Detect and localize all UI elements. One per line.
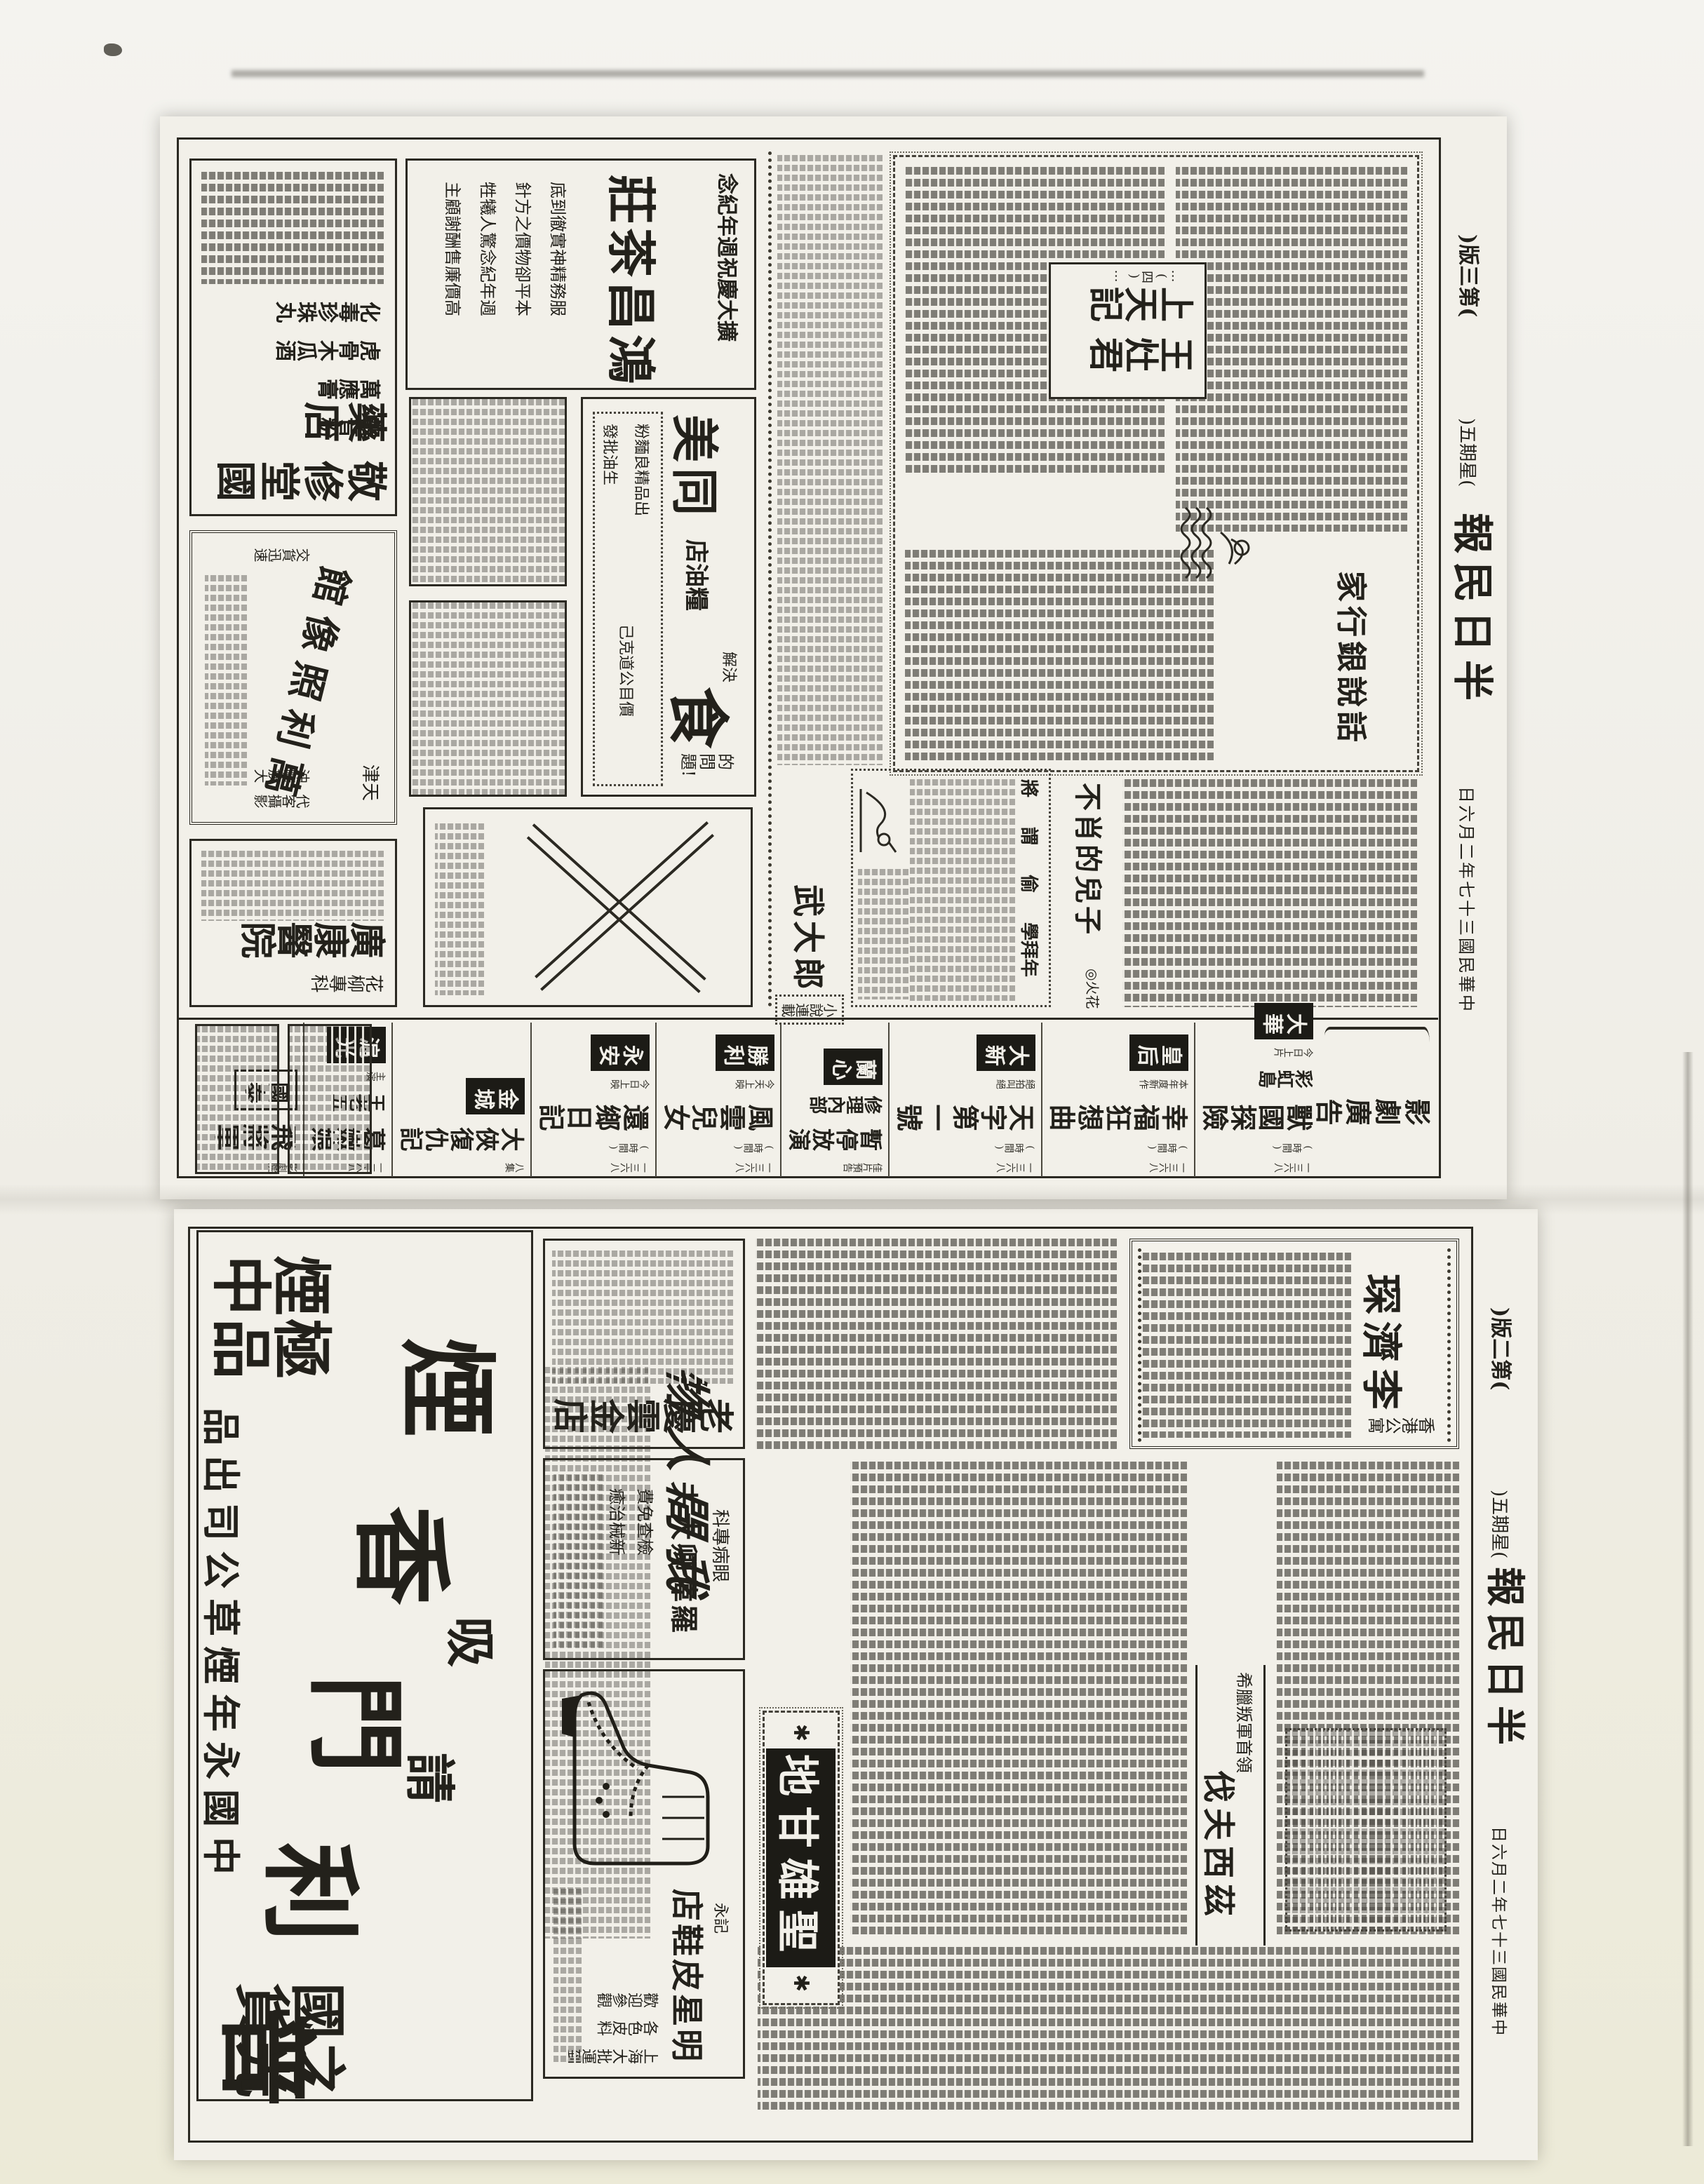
essay-title: 不肖的兒子	[1070, 783, 1111, 937]
crossed-lines-ad	[423, 807, 753, 1007]
page-three: )版三第( )五期星( 報民日半 日六月二年七十三國民華中 家行銀說話	[160, 116, 1507, 1199]
grain-oil-item: 發批油生	[600, 424, 622, 485]
feature-text	[1176, 167, 1407, 532]
eye-clinic-line: 費免查檢	[634, 1488, 659, 1556]
listing-time-label: (時間)	[608, 1140, 650, 1154]
listing-theater: 金城	[466, 1078, 525, 1114]
listing-film: 風雲兒女	[662, 1096, 774, 1135]
catchword: 謂	[1017, 827, 1043, 845]
weekday-label: )五期星(	[1456, 418, 1482, 487]
serial-note: …(四)…	[1112, 267, 1183, 285]
listing-theater: 大新	[977, 1034, 1035, 1071]
greek-name: 伐夫西茲	[1198, 1770, 1244, 1922]
news-inset-box	[1285, 1728, 1447, 1932]
gold-shop-name: 老慶雲金店	[552, 1388, 734, 1438]
supplement-text	[777, 155, 883, 765]
photo-service: 代客攝影	[254, 790, 310, 811]
news-text	[850, 1462, 1187, 1939]
grain-oil-hook-tail: 的問題!	[679, 753, 734, 774]
listing-tag: 八集	[505, 1160, 525, 1174]
grain-oil-type: 店油糧	[681, 539, 716, 611]
listing-time-label: (時間)	[732, 1140, 774, 1154]
cigarette-cmd-a: 請	[397, 1753, 471, 1803]
cinema-listing: 一三六八 (時間) 天字第一號 絕拍叫絕 大新	[888, 1023, 1041, 1177]
cigarette-brand-char: 煙	[383, 1337, 528, 1437]
grain-oil-ad: 美同 店油糧 解決 食 的問題! 粉麵良精品出 發批油生 己克道公目價	[581, 397, 756, 797]
ornament-row	[1138, 1248, 1141, 1442]
cigarette-slogan: 國貨之光	[221, 1977, 347, 2095]
tea-house-slogan: 針方之價物卻平本	[512, 182, 537, 316]
grain-oil-name: 美同	[664, 414, 733, 521]
page-three-region: )版三第( )五期星( 報民日半 日六月二年七十三國民華中 家行銀說話	[160, 116, 1507, 1199]
listing-theater: 蘭心	[824, 1049, 883, 1085]
cinema-header: 影劇廣告	[1313, 1091, 1431, 1129]
listing-film: 天字第一號	[895, 1096, 1035, 1135]
greek-kicker: 希臘叛軍首領	[1233, 1672, 1258, 1773]
catchword: 偷	[1017, 875, 1043, 893]
eye-clinic-name: 夫大卿偉羅	[666, 1481, 706, 1636]
page-two-region: )版二第( )五期星( 報民日半 日六月二年七十三國民華中 香港公寓 琛濟李 希…	[174, 1209, 1538, 2160]
cinema-listing: 一三六八 (時間) 幸福狂想曲 本年度新作 皇后	[1041, 1023, 1194, 1177]
listing-theater: 大華	[1254, 1003, 1313, 1039]
listing-tag: 今日上片	[1274, 1045, 1313, 1059]
listing-phone: 一三六八	[1149, 1160, 1188, 1174]
tea-house-slogan: 底到徹實神精務服	[547, 182, 572, 316]
cinema-listing: 佳片預告 暫停放演 修理內部 蘭心	[780, 1023, 888, 1177]
ornament-row	[1447, 1248, 1451, 1442]
lead-interview-box: 香港公寓 琛濟李	[1129, 1239, 1459, 1449]
listing-film: 大俠復仇記	[398, 1120, 525, 1154]
cigarette-brand-char: 利	[246, 1842, 391, 1942]
eye-clinic-text	[554, 1474, 603, 1648]
eye-clinic-dept: 科專病眼	[709, 1509, 734, 1582]
tea-house-name: 莊茶昌鴻	[599, 175, 670, 388]
listing-film: 獸國探險	[1201, 1096, 1313, 1135]
grain-oil-item: 己克道公目價	[616, 624, 638, 717]
page-label: )版二第(	[1487, 1307, 1518, 1390]
date-line: 日六月二年七十三國民華中	[1489, 1826, 1512, 2037]
date-line: 日六月二年七十三國民華中	[1456, 786, 1480, 1013]
listing-theater: 永安	[591, 1034, 650, 1071]
cigarette-brand-char: 香	[337, 1506, 482, 1605]
eye-clinic-line: 癒治械新	[606, 1488, 631, 1556]
grain-oil-hook-big: 食	[658, 687, 747, 748]
cinema-listing: 八集 大俠復仇記 金城	[391, 1023, 530, 1177]
gandhi-title: 地甘雄聖	[767, 1748, 836, 1967]
catchword: 學拜年	[1017, 922, 1043, 977]
news-text	[758, 1947, 1459, 2114]
pharmacy-product: 觀音粉	[318, 410, 381, 440]
pharmacy-product: 化毒珍珠丸	[276, 294, 381, 325]
listing-phone: 一三六八	[996, 1160, 1035, 1174]
diagonal-line	[540, 834, 714, 991]
photo-text	[205, 575, 247, 786]
scanned-sheet: )版三第( )五期星( 報民日半 日六月二年七十三國民華中 家行銀說話	[0, 0, 1704, 2184]
novel-feature-box: 將 謂 偷 學拜年	[851, 769, 1051, 1007]
small-ad	[409, 397, 567, 586]
tea-house-slogan: 主顧謝酬售廉價高	[442, 182, 467, 316]
star-ornament-icon: ✱	[789, 1974, 814, 1992]
page-two: )版二第( )五期星( 報民日半 日六月二年七十三國民華中 香港公寓 琛濟李 希…	[174, 1209, 1538, 2160]
serial-title-right: 王灶君	[1089, 327, 1195, 377]
tea-house-slogan: 牲犧人驚念紀年週	[477, 182, 502, 316]
photo-city: 津天	[358, 764, 384, 801]
hospital-text	[201, 851, 384, 921]
pharmacy-product: 虎骨木瓜酒	[276, 332, 381, 363]
photo-service: 沖曬放大	[254, 765, 310, 786]
grain-oil-item: 粉麵良精品出	[631, 424, 654, 516]
listing-tag: 絕拍叫絕	[996, 1077, 1035, 1091]
listing-time-label: (時間)	[1146, 1140, 1188, 1154]
serial-title-box: 王灶君 上天記 …(四)…	[1049, 262, 1207, 399]
photo-studio-ad: 津天 館像照利萬 代客攝影 沖曬放大 交貨迅速	[189, 530, 397, 825]
masthead: 報民日半	[1480, 1567, 1536, 1752]
tea-house-banner: 念紀年週祝慶大擴	[713, 173, 744, 342]
shoe-illustration	[554, 1681, 729, 1878]
photo-service: 交貨迅速	[254, 544, 310, 565]
novel-title: 武大郎	[787, 884, 833, 994]
masthead: 報民日半	[1447, 513, 1505, 709]
ad-text	[435, 823, 484, 995]
pharmacy-product: 萬應膏	[318, 371, 381, 402]
feature-headline: 家行銀說話	[1331, 571, 1376, 746]
greek-headline-block: 希臘叛軍首領 伐夫西茲	[1195, 1665, 1266, 1946]
gold-shop-ad: 老慶雲金店	[543, 1239, 745, 1449]
pharmacy-ad: 敬修堂國藥店 觀音粉 萬應膏 虎骨木瓜酒 化毒珍珠丸	[189, 159, 397, 516]
listing-time-label: (時間)	[993, 1140, 1035, 1154]
cinema-listings: 一三六八 (時間) 獸國探險 彩虹島 今日上片 大華 一三六八 (時間) 幸福狂…	[208, 1023, 1319, 1177]
listing-film2: 彩虹島	[1259, 1065, 1313, 1091]
listing-film: 幸福狂想曲	[1048, 1096, 1188, 1135]
shoe-store-ad: 永記 店鞋皮星明 上海大批運到 各色皮料 歡迎參觀	[543, 1669, 745, 2079]
news-text	[756, 1239, 1117, 1449]
cigarette-grade: 煙中極品	[200, 1248, 333, 1375]
scan-speck	[104, 43, 122, 56]
essay-author: ◎火花	[1083, 969, 1103, 1009]
grain-oil-hook-small: 解決	[719, 652, 742, 682]
listing-film: 還鄉日記	[537, 1096, 650, 1135]
cigarette-cmd-b: 吸	[438, 1617, 511, 1667]
tea-house-ad: 念紀年週祝慶大擴 莊茶昌鴻 底到徹實神精務服 針方之價物卻平本 牲犧人驚念紀年週…	[405, 159, 756, 390]
eye-clinic-ad: 科專病眼 夫大卿偉羅 費免查檢 癒治械新	[543, 1458, 745, 1660]
listing-theater: 皇后	[1129, 1034, 1188, 1071]
classified-ad	[288, 1024, 372, 1174]
star-ornament-icon: ✱	[789, 1724, 814, 1741]
pharmacy-text	[201, 172, 384, 284]
listing-tag: 今日上映	[610, 1077, 650, 1091]
gold-shop-text	[552, 1251, 733, 1384]
waves-illustration	[1179, 504, 1280, 588]
cigarette-maker: 品出司公草煙年永國中	[196, 1408, 252, 1885]
lead-text	[1141, 1253, 1351, 1438]
listing-time-label: (時間)	[1271, 1140, 1313, 1154]
listing-tag: 佳片預告	[843, 1160, 883, 1174]
listing-theater: 勝利	[716, 1034, 774, 1071]
listing-film2: 修理內部	[810, 1091, 883, 1117]
feature-text	[905, 550, 1214, 760]
page-label: )版三第(	[1455, 234, 1486, 317]
cinema-header-rule	[1324, 1027, 1430, 1058]
diagonal-line	[535, 821, 709, 978]
small-ad	[409, 600, 567, 797]
sketch-illustration	[856, 782, 908, 859]
listing-tag: 今天上映	[735, 1077, 774, 1091]
page-edge-smudge	[232, 70, 1424, 77]
feature-box: 家行銀說話 王灶君 上天記 …(四)…	[893, 155, 1419, 772]
listing-phone: 一三六八	[610, 1160, 650, 1174]
novel-text	[910, 779, 1015, 1001]
weekday-label: )五期星(	[1488, 1490, 1514, 1558]
listing-phone: 一三六八	[1274, 1160, 1313, 1174]
pharmacy-name: 敬修堂國藥店	[192, 389, 388, 507]
listing-film: 暫停放演	[787, 1122, 883, 1154]
grain-oil-items-box: 粉麵良精品出 發批油生 己克道公目價	[593, 412, 663, 786]
hospital-dept: 花柳專科	[311, 969, 384, 995]
shoe-store-sub: 永記	[711, 1903, 733, 1934]
gandhi-header: ✱ 地甘雄聖 ✱	[763, 1711, 840, 2005]
cinema-listing: 一三六八 (時間) 獸國探險 彩虹島 今日上片 大華	[1194, 1023, 1319, 1177]
fold-streak	[1682, 1052, 1693, 2146]
shoe-store-line: 歡迎參觀	[597, 1987, 659, 2009]
hospital-ad: 花柳專科 廣康醫院	[189, 839, 397, 1007]
diagonal-line	[527, 836, 701, 993]
catchword: 將	[1017, 779, 1043, 797]
shoe-store-line: 各色皮料	[597, 2015, 659, 2037]
listing-tag: 本年度新作	[1139, 1077, 1188, 1091]
classified-ad	[195, 1024, 279, 1174]
ornament-divider	[767, 151, 772, 1007]
shoe-store-text	[554, 1889, 582, 2064]
essay-text	[1122, 779, 1417, 1007]
cinema-listing: 一三六八 (時間) 風雲兒女 今天上映 勝利	[655, 1023, 780, 1177]
novel-text	[858, 869, 908, 999]
cinema-listing: 一三六八 (時間) 還鄉日記 今日上映 永安	[530, 1023, 655, 1177]
cinema-section: 影劇廣告 一三六八 (時間) 獸國探險 彩虹島 今日上片 大華 一三六八 (時間…	[177, 1018, 1438, 1178]
lead-name: 琛濟李	[1355, 1274, 1414, 1417]
listing-phone: 一三六八	[735, 1160, 774, 1174]
cigarette-ad: 煙 香 門 利 普 吸 請 煙中極品 國貨之光 品出司公草煙年永國中	[196, 1230, 533, 2101]
shoe-store-name: 店鞋皮星明	[666, 1889, 712, 2064]
